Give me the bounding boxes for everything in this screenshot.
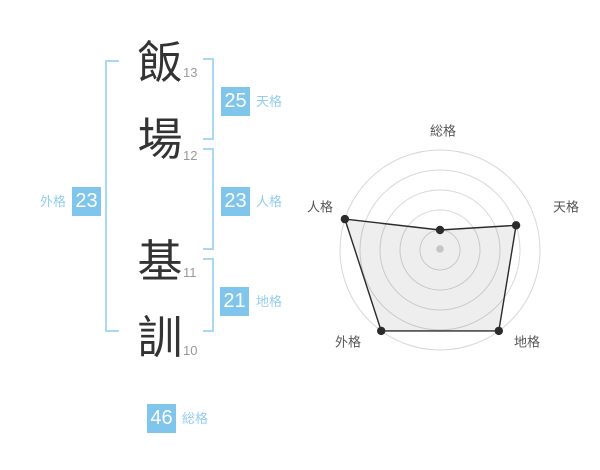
- chikaku-bracket: [203, 258, 214, 332]
- radar-axis-label: 天格: [553, 200, 579, 215]
- jinkaku-label: 人格: [256, 194, 282, 209]
- radar-data-point: [341, 215, 349, 223]
- name-char-4: 訓: [137, 315, 183, 361]
- stroke-count-4: 10: [183, 344, 207, 358]
- seimei-handan-result-panel: 飯 場 基 訓 13 12 11 10 25 天格 23 人格 21 地格 外格…: [0, 0, 600, 470]
- name-char-1: 飯: [137, 40, 183, 86]
- name-char-2: 場: [137, 117, 183, 163]
- radar-data-polygon: [345, 219, 516, 331]
- radar-axis-label: 外格: [335, 335, 361, 350]
- radar-data-point: [495, 327, 503, 335]
- radar-axis-label: 地格: [514, 335, 540, 350]
- soukaku-badge: 46: [147, 404, 176, 433]
- radar-chart-svg: 総格天格地格外格人格: [300, 95, 600, 385]
- radar-axis-label: 人格: [307, 200, 333, 215]
- radar-data-point: [512, 221, 520, 229]
- fortune-radar-chart: 総格天格地格外格人格: [300, 95, 600, 385]
- soukaku-label: 総格: [182, 411, 208, 426]
- radar-center-dot: [436, 245, 444, 253]
- gaikaku-bracket: [105, 60, 119, 332]
- gaikaku-badge: 23: [72, 187, 101, 216]
- tenkaku-bracket: [203, 58, 214, 140]
- chikaku-badge: 21: [220, 287, 249, 316]
- name-char-3: 基: [137, 239, 183, 285]
- radar-data-point: [377, 327, 385, 335]
- radar-data-point: [436, 226, 444, 234]
- tenkaku-label: 天格: [256, 94, 282, 109]
- gaikaku-label: 外格: [40, 194, 66, 209]
- jinkaku-badge: 23: [221, 187, 250, 216]
- radar-axis-label: 総格: [430, 124, 456, 139]
- tenkaku-badge: 25: [221, 87, 250, 116]
- chikaku-label: 地格: [256, 294, 282, 309]
- jinkaku-bracket: [203, 148, 214, 250]
